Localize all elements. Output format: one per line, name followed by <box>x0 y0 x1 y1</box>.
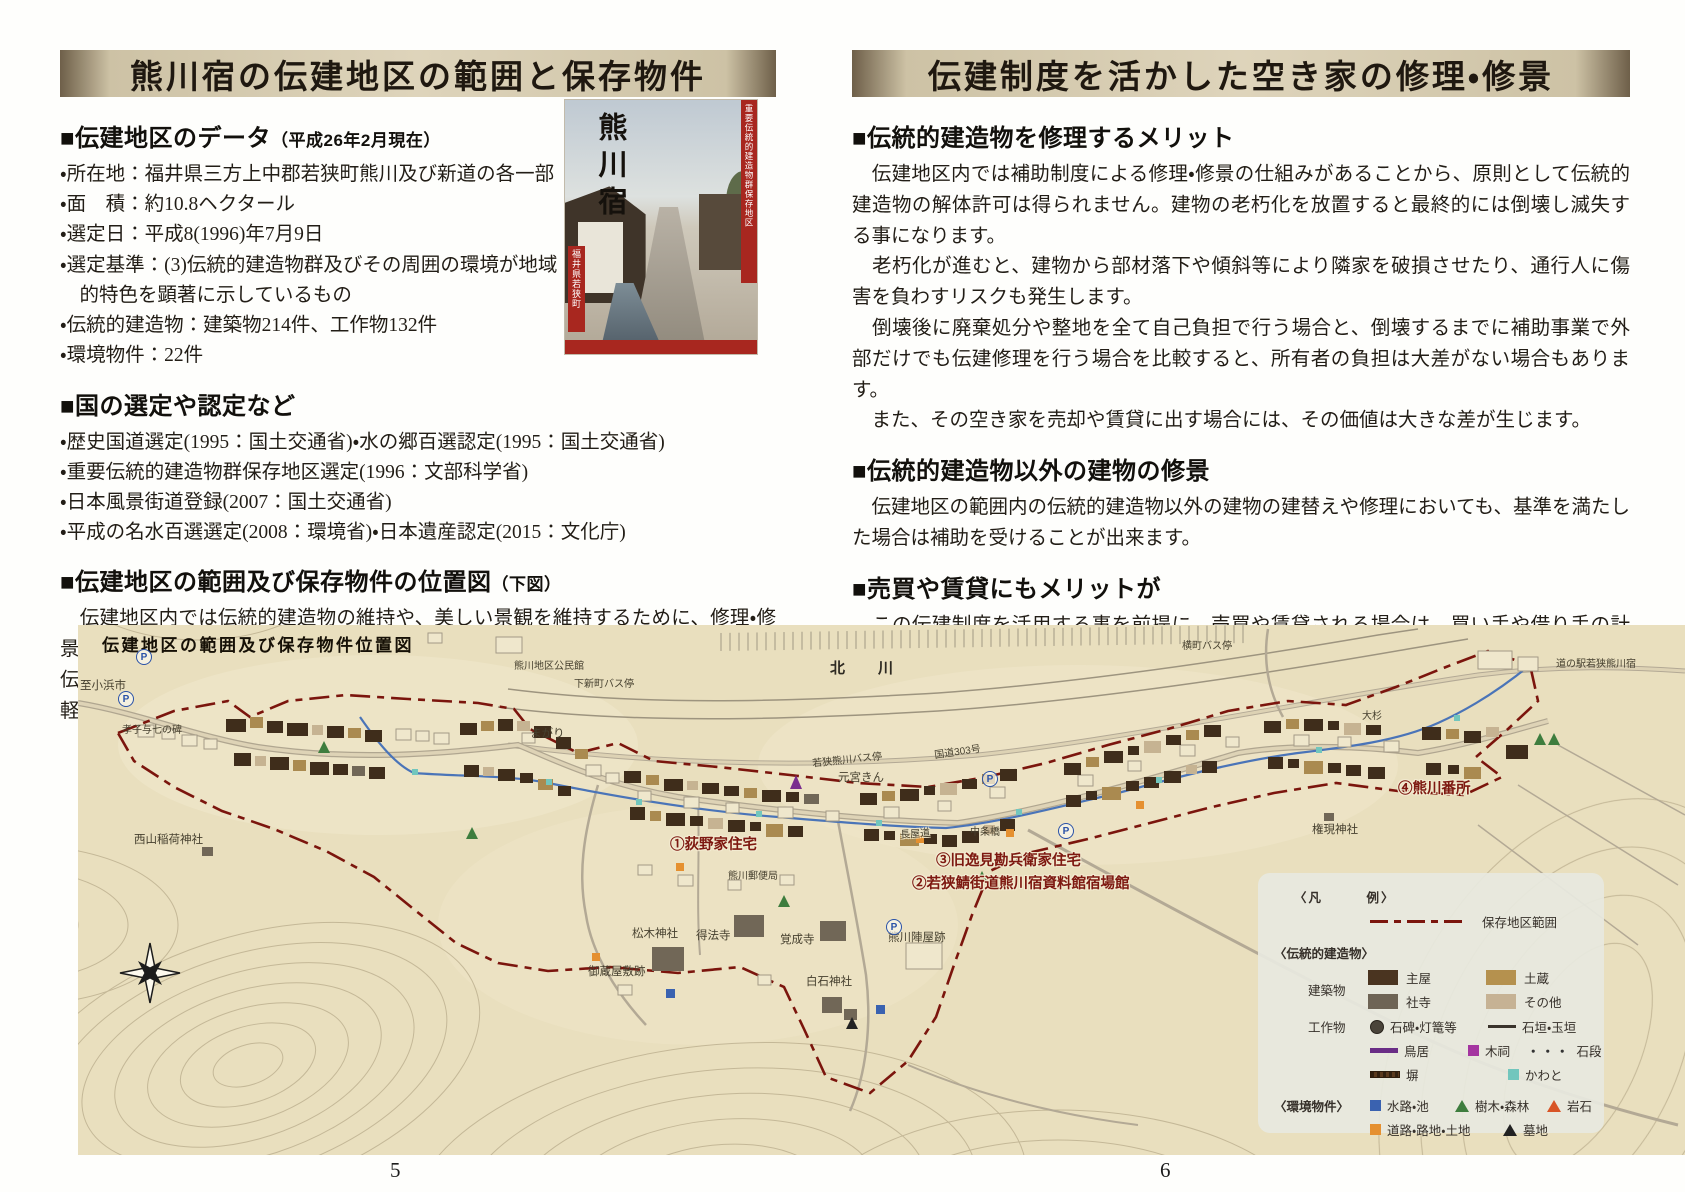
map-legend: 〈凡 例〉 保存地区範囲 〈伝統的建造物〉 建築物 主屋 土蔵 社寺 その他 工… <box>1258 873 1604 1133</box>
district-data-list: ・所在地：福井県三方上中郡若狭町熊川及び新道の各一部 ・面 積：約10.8ヘクタ… <box>60 160 565 372</box>
heading-note: （平成26年2月現在） <box>271 131 441 150</box>
section-heading: ■伝統的建造物を修理するメリット <box>852 118 1630 153</box>
heading-text: ■伝統的建造物以外の建物の修景 <box>852 458 1210 485</box>
section-heading: ■国の選定や認定など <box>60 386 776 421</box>
wooden-shrine-icon <box>1468 1045 1479 1056</box>
environment-label: 岩石 <box>1567 1096 1592 1115</box>
left-page-title: 熊川宿の伝建地区の範囲と保存物件 <box>130 50 706 98</box>
environment-label: 墓地 <box>1523 1120 1548 1139</box>
structure-label: 木祠 <box>1485 1041 1521 1060</box>
stone-steps-icon: ・・・ <box>1527 1041 1571 1060</box>
trees-icon <box>1455 1100 1469 1112</box>
parking-icon: P <box>118 691 134 707</box>
boundary-line-sample <box>1370 920 1468 923</box>
legend-environment-row: 〈環境物件〉 水路・池 樹木・森林 岩石 道路・路地・土地 墓地 <box>1258 1096 1604 1139</box>
boundary-label: 保存地区範囲 <box>1482 912 1557 931</box>
map-label-bus-shimoshinmachi: 下新町バス停 <box>574 675 634 690</box>
legend-boundary-row: 保存地区範囲 <box>1258 912 1604 931</box>
heading-text: ■伝統的建造物を修理するメリット <box>852 125 1235 152</box>
list-item: ・歴史国道選定(1995：国土交通省)・水の郷百選認定(1995：国土交通省) <box>60 428 776 458</box>
cover-pref-box: 福井県若狭町 <box>568 246 585 332</box>
legend-heading: 〈凡 例〉 <box>1294 887 1604 906</box>
list-item: ・所在地：福井県三方上中郡若狭町熊川及び新道の各一部 <box>60 160 565 190</box>
cover-right-building <box>699 194 743 270</box>
map-label-kakujoji: 覚成寺 <box>780 931 815 947</box>
road-icon <box>1370 1124 1381 1135</box>
map-label-kitagawa-river: 北 川 <box>830 657 902 678</box>
map-label-magari: まがり <box>530 725 565 741</box>
fence-icon <box>1370 1071 1400 1078</box>
list-item: ・日本風景街道登録(2007：国土交通省) <box>60 488 776 518</box>
section-heading: ■伝統的建造物以外の建物の修景 <box>852 451 1630 486</box>
list-item: ・選定日：平成8(1996)年7月9日 <box>60 220 565 250</box>
map-label-post-office: 熊川郵便局 <box>728 867 778 882</box>
list-item: ・伝統的建造物：建築物214件、工作物132件 <box>60 311 565 341</box>
heading-note: （下図） <box>492 575 562 594</box>
parking-icon: P <box>982 771 998 787</box>
list-item: ・面 積：約10.8ヘクタール <box>60 190 565 220</box>
preservation-district-map: 伝建地区の範囲及び保存物件位置図 至小浜市 下新町バス停 熊川地区公民館 孝子与… <box>78 625 1685 1155</box>
environment-label: 水路・池 <box>1387 1096 1449 1115</box>
cover-title-vertical: 熊川宿 <box>589 112 631 223</box>
structure-label: 石碑・灯篭等 <box>1390 1017 1482 1036</box>
paragraph: 伝建地区内では補助制度による修理・修景の仕組みがあることから、原則として伝統的建… <box>852 160 1630 252</box>
environment-label: 道路・路地・土地 <box>1387 1120 1497 1139</box>
map-label-matsunoki-shrine: 松木神社 <box>632 925 678 941</box>
map-label-michinoeki: 道の駅若狭熊川宿 <box>1556 655 1636 670</box>
legend-buildings-row: 建築物 主屋 土蔵 社寺 その他 <box>1258 968 1604 1011</box>
swatch-label: 土蔵 <box>1524 968 1549 987</box>
page-number-right: 6 <box>1160 1158 1171 1183</box>
map-label-motomiya: 元宮きん <box>838 769 884 785</box>
heading-text: ■伝建地区の範囲及び保存物件の位置図 <box>60 569 492 596</box>
section-heading: ■伝建地区の範囲及び保存物件の位置図（下図） <box>60 562 776 597</box>
swatch-shaji <box>1368 994 1398 1009</box>
swatch-dozo <box>1486 970 1516 985</box>
cover-red-banner: 重要伝統的建造物群保存地区 <box>741 100 757 283</box>
cover-pref-label: 福井県若狭町 <box>570 249 583 332</box>
list-item: ・環境物件：22件 <box>60 341 565 371</box>
map-callout-hemmi-house: ③旧逸見勘兵衛家住宅 <box>936 849 1081 870</box>
map-label-nagayamichi: 長屋道 <box>900 824 931 841</box>
list-item: ・重要伝統的建造物群保存地区選定(1996：文部科学省) <box>60 458 776 488</box>
torii-icon <box>1370 1048 1398 1053</box>
paragraph: 伝建地区の範囲内の伝統的建造物以外の建物の建替えや修理においても、基準を満たした… <box>852 493 1630 555</box>
section-national-selections: ■国の選定や認定など ・歴史国道選定(1995：国土交通省)・水の郷百選認定(1… <box>60 386 776 549</box>
swatch-label: その他 <box>1524 992 1562 1011</box>
structure-label: 鳥居 <box>1404 1041 1462 1060</box>
section-non-traditional: ■伝統的建造物以外の建物の修景 伝建地区の範囲内の伝統的建造物以外の建物の建替え… <box>852 451 1630 555</box>
cover-white-storehouse <box>578 222 622 293</box>
right-page-title: 伝建制度を活かした空き家の修理・修景 <box>928 50 1554 98</box>
swatch-label: 社寺 <box>1406 992 1431 1011</box>
swatch-omoya <box>1368 970 1398 985</box>
category-buildings-label: 建築物 <box>1308 980 1368 999</box>
legend-traditional-heading: 〈伝統的建造物〉 <box>1274 943 1604 962</box>
heading-text: ■伝建地区のデータ <box>60 125 271 152</box>
structure-label: 石垣・玉垣 <box>1522 1017 1576 1036</box>
parking-icon: P <box>1058 823 1074 839</box>
swatch-label: 主屋 <box>1406 968 1431 987</box>
map-label-kohama: 至小浜市 <box>80 677 126 693</box>
left-page-title-banner: 熊川宿の伝建地区の範囲と保存物件 <box>60 50 776 97</box>
page-number-left: 5 <box>390 1158 401 1183</box>
grave-icon <box>1503 1124 1517 1136</box>
map-label-nakajo-bridge: 中条橋 <box>970 823 1000 838</box>
structure-label: 石段 <box>1577 1041 1602 1060</box>
cover-bottom-bar <box>565 340 757 354</box>
parking-icon: P <box>886 919 902 935</box>
stone-monument-icon <box>1370 1020 1384 1034</box>
map-callout-bansho: ④熊川番所 <box>1398 777 1471 798</box>
heading-text: ■売買や賃貸にもメリットが <box>852 576 1161 603</box>
waterway-icon <box>1370 1100 1381 1111</box>
cover-red-banner-text: 重要伝統的建造物群保存地区 <box>743 104 755 283</box>
map-label-community-center: 熊川地区公民館 <box>514 657 584 672</box>
environment-label: 樹木・森林 <box>1475 1096 1541 1115</box>
map-callout-shukubakan-museum: ②若狭鯖街道熊川宿資料館宿場館 <box>912 872 1130 893</box>
heading-text: ■国の選定や認定など <box>60 393 296 420</box>
list-item: ・平成の名水百選選定(2008：環境省)・日本遺産認定(2015：文化庁) <box>60 518 776 548</box>
section-repair-merit: ■伝統的建造物を修理するメリット 伝建地区内では補助制度による修理・修景の仕組み… <box>852 118 1630 437</box>
map-label-bus-yokomachi: 横町バス停 <box>1182 637 1232 652</box>
list-item: ・選定基準：(3)伝統的建造物群及びその周囲の環境が地域的特色を顕著に示している… <box>60 251 565 311</box>
structure-label: かわと <box>1525 1065 1563 1084</box>
category-structures-label: 工作物 <box>1308 1017 1370 1036</box>
right-page-title-banner: 伝建制度を活かした空き家の修理・修景 <box>852 50 1630 97</box>
map-label-nishiyama-shrine: 西山稲荷神社 <box>134 831 203 847</box>
section-heading: ■売買や賃貸にもメリットが <box>852 569 1630 604</box>
kawato-icon <box>1508 1069 1519 1080</box>
paragraph: また、その空き家を売却や賃貸に出す場合には、その価値は大きな差が生じます。 <box>852 406 1630 437</box>
pamphlet-cover-photo: 熊川宿 重要伝統的建造物群保存地区 福井県若狭町 <box>565 100 757 354</box>
swatch-sonota <box>1486 994 1516 1009</box>
stone-wall-icon <box>1488 1025 1516 1028</box>
map-label-shiraishi-shrine: 白石神社 <box>806 973 852 989</box>
brochure-spread: { "left_page": { "title": "熊川宿の伝建地区の範囲と保… <box>0 0 1685 1192</box>
rock-icon <box>1547 1100 1561 1112</box>
map-label-gongen-shrine: 権現神社 <box>1312 821 1358 837</box>
paragraph: 倒壊後に廃棄処分や整地を全て自己負担で行う場合と、倒壊するまでに補助事業で外部だ… <box>852 314 1630 406</box>
parking-icon: P <box>136 649 152 665</box>
selection-list: ・歴史国道選定(1995：国土交通省)・水の郷百選認定(1995：国土交通省) … <box>60 428 776 549</box>
map-label-koshi-monument: 孝子与七の碑 <box>122 721 182 736</box>
map-label-osugi: 大杉 <box>1362 707 1382 722</box>
environment-heading: 〈環境物件〉 <box>1274 1096 1370 1115</box>
structure-label: 塀 <box>1406 1065 1502 1084</box>
map-label-okura-yashiki: 御蔵屋敷跡 <box>588 963 646 979</box>
map-label-tokuhoji: 得法寺 <box>696 927 731 943</box>
map-callout-ogino-house: ①荻野家住宅 <box>670 833 757 854</box>
paragraph: 老朽化が進むと、建物から部材落下や傾斜等により隣家を破損させたり、通行人に傷害を… <box>852 252 1630 314</box>
right-column: ■伝統的建造物を修理するメリット 伝建地区内では補助制度による修理・修景の仕組み… <box>852 104 1630 703</box>
legend-structures-row: 工作物 石碑・灯篭等 石垣・玉垣 鳥居 木祠 ・・・ 石段 <box>1258 1017 1604 1084</box>
